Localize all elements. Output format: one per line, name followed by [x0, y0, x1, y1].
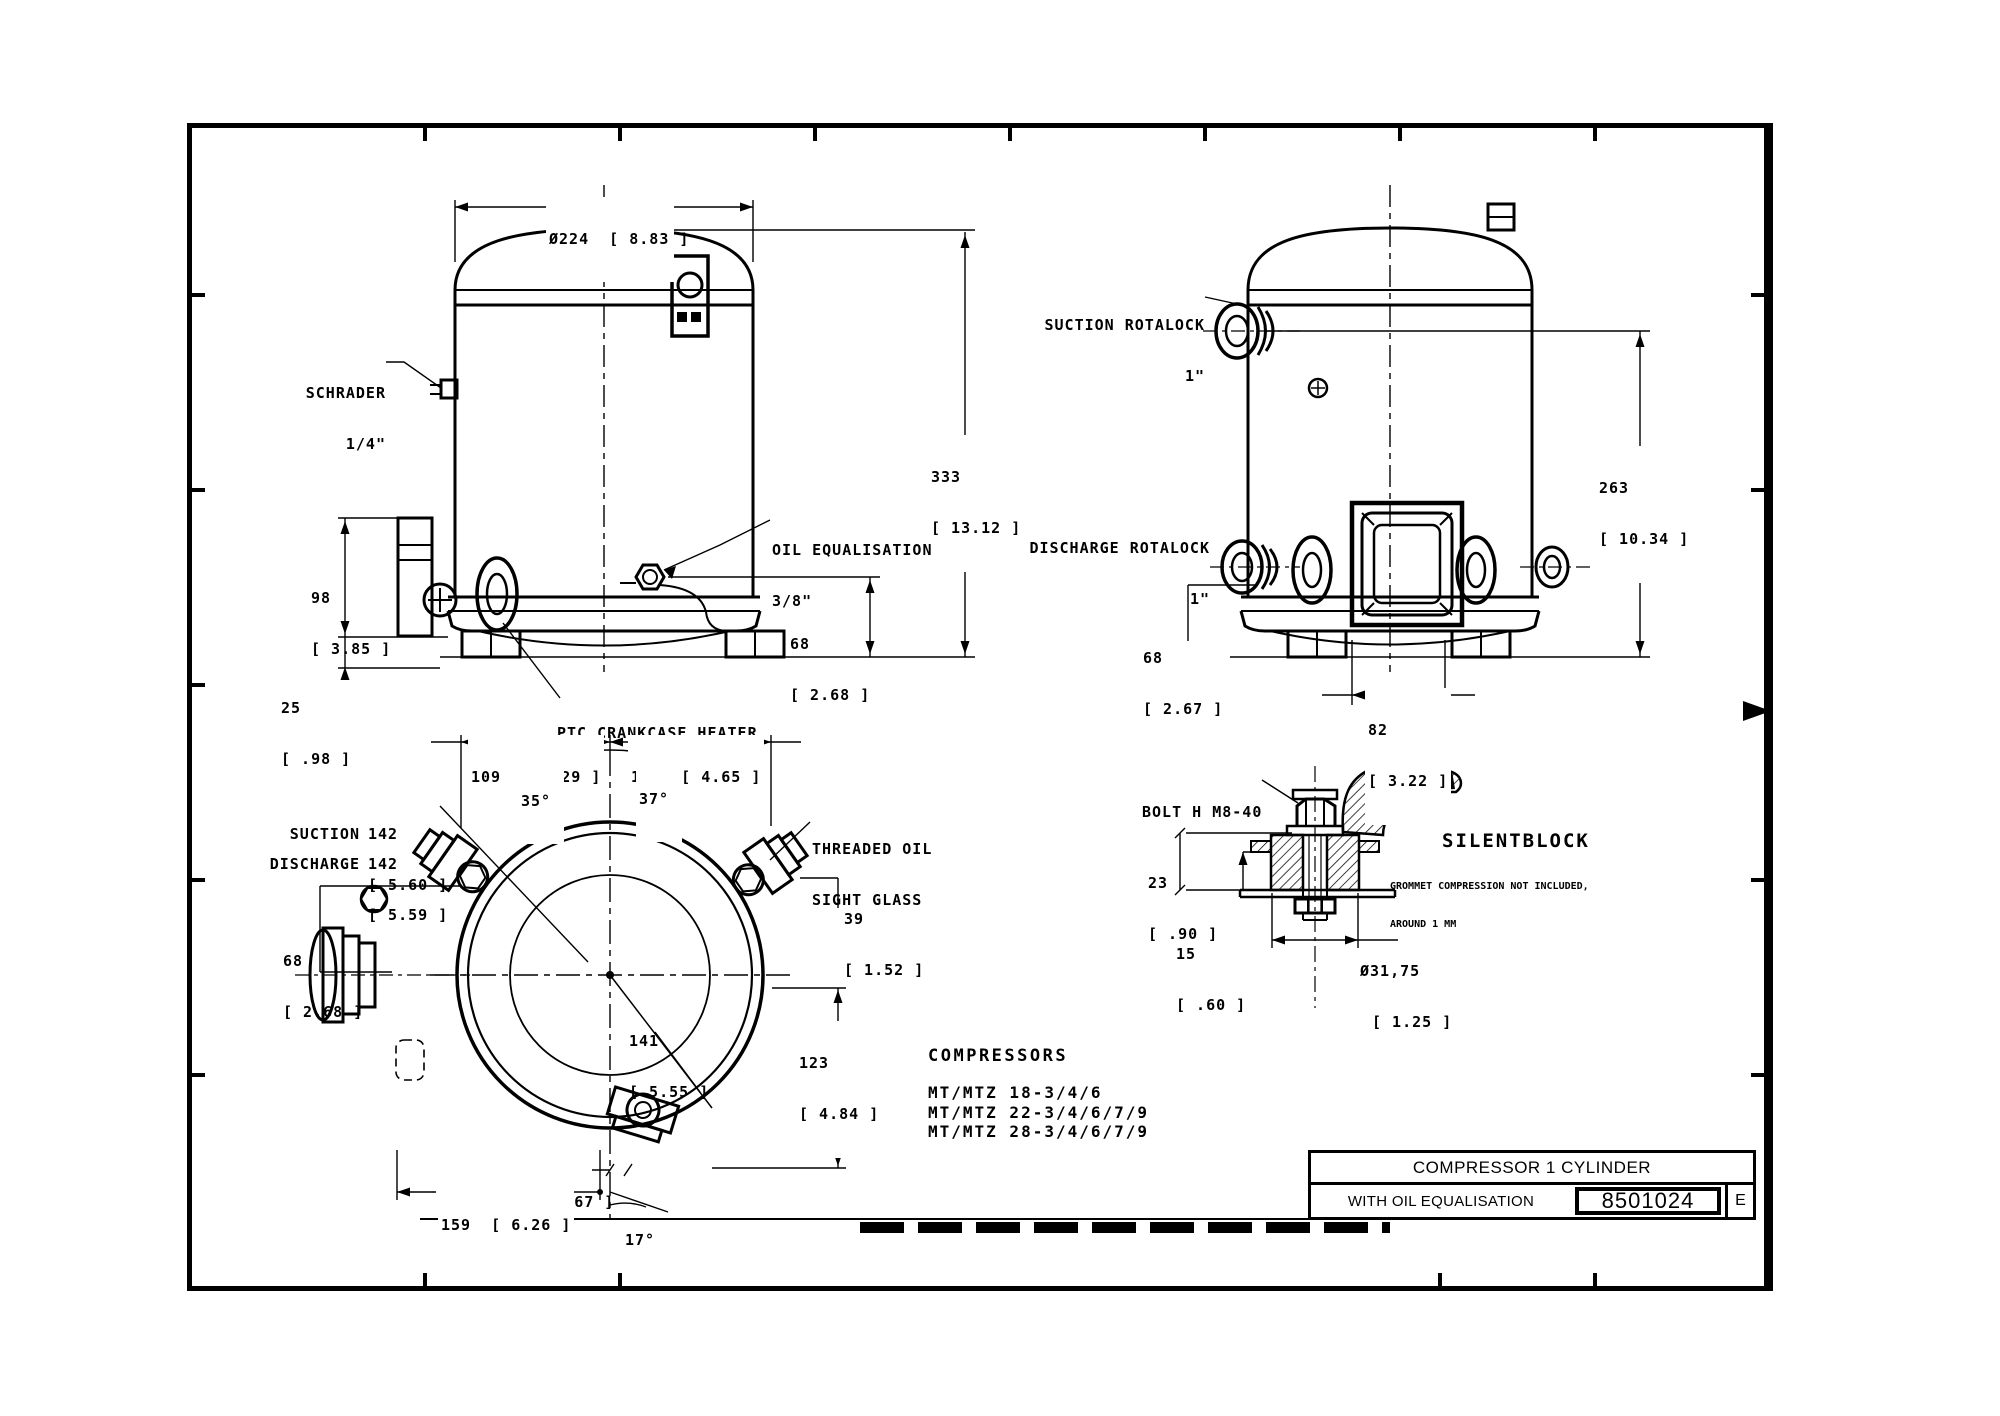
top-discharge-dim: 142 [ 5.59 ]	[368, 822, 448, 959]
angle-35-label: 35°	[518, 759, 564, 844]
grommet-note: GROMMET COMPRESSION NOT INCLUDED, AROUND…	[1390, 856, 1589, 956]
frame-center-arrow	[1743, 701, 1771, 721]
silentblock-dim-15: 15 [ .60 ]	[1176, 912, 1246, 1049]
angle-17-label: 17°	[625, 1198, 665, 1283]
title-block-title: COMPRESSOR 1 CYLINDER	[1311, 1153, 1753, 1185]
front-bracket	[398, 518, 517, 636]
mount-lug-left	[1293, 537, 1331, 603]
top-discharge-label: DISCHARGE	[266, 822, 360, 907]
fold-ruler-strip	[860, 1222, 1390, 1233]
angle-37-label: 37°	[636, 757, 682, 842]
top-dim-39: 39 [ 1.52 ]	[844, 877, 924, 1014]
base-plate	[1240, 890, 1395, 897]
top-dim-141: 141 [ 5.55 ]	[629, 999, 709, 1136]
side-dim-82: 82 [ 3.22 ]	[1365, 688, 1451, 825]
revision-letter: E	[1725, 1185, 1753, 1217]
top-dim-159: 159 [ 6.26 ]	[438, 1183, 574, 1268]
terminal-box	[1352, 503, 1462, 625]
drawing-number: 8501024	[1575, 1187, 1721, 1215]
lifting-lug	[672, 256, 708, 336]
title-block-subtitle: WITH OIL EQUALISATION	[1311, 1185, 1571, 1217]
top-discharge-fitting	[722, 824, 814, 909]
side-dim-68: 68 [ 2.67 ]	[1143, 616, 1223, 753]
compressor-model-3: MT/MTZ 28-3/4/6/7/9	[928, 1087, 1149, 1178]
top-dim-123: 123 [ 4.84 ]	[796, 1021, 882, 1158]
title-block: COMPRESSOR 1 CYLINDER WITH OIL EQUALISAT…	[1308, 1150, 1756, 1220]
side-view-drawing	[1188, 185, 1650, 705]
schrader-label: SCHRADER 1/4"	[298, 351, 386, 488]
side-height-dim: 263 [ 10.34 ]	[1596, 446, 1692, 583]
front-diameter-dim: Ø224 [ 8.83 ]	[546, 197, 674, 282]
drawing-sheet: Ø224 [ 8.83 ] SCHRADER 1/4" 333 [ 13.12 …	[0, 0, 2000, 1416]
front-dim-68: 68 [ 2.68 ]	[790, 602, 870, 739]
suction-rotalock-label: SUCTION ROTALOCK 1"	[1035, 283, 1205, 420]
front-dim-25: 25 [ .98 ]	[281, 666, 351, 803]
oil-equalisation-fitting	[620, 565, 664, 589]
top-dim-68: 68 [ 2.68 ]	[283, 919, 363, 1056]
hidden-feature	[396, 1040, 424, 1080]
front-height-dim: 333 [ 13.12 ]	[928, 435, 1024, 572]
